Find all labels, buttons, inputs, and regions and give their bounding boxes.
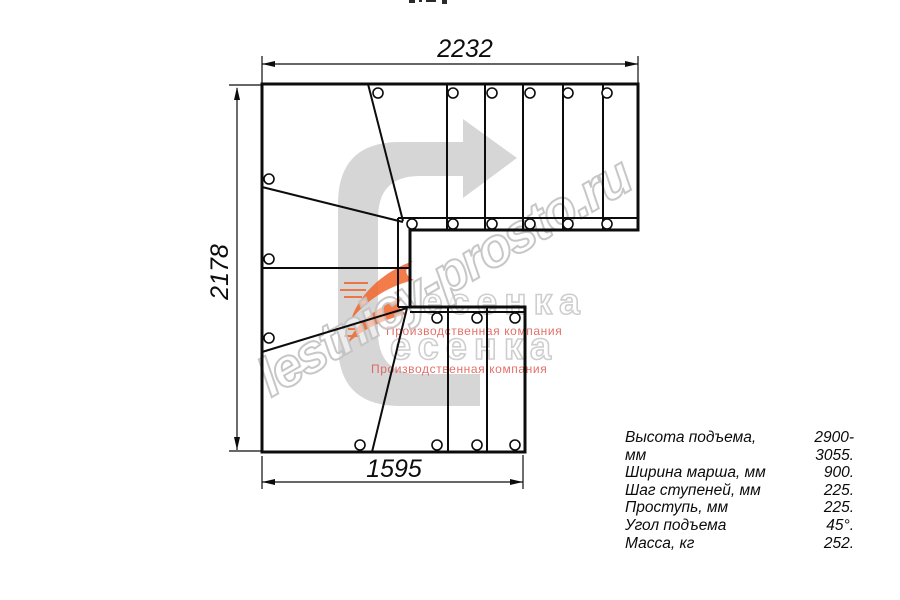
spec-row: Проступь, мм 225. — [625, 499, 854, 517]
entry-flight-tread-lines — [448, 307, 487, 452]
spec-label: Угол подъема — [625, 517, 726, 535]
mounting-hole — [563, 88, 573, 98]
spec-value: 45°. — [826, 517, 854, 535]
spec-label: Проступь, мм — [625, 499, 728, 517]
mounting-hole — [264, 333, 274, 343]
dimension-label-left: 2178 — [206, 244, 234, 301]
spec-value: 225. — [824, 499, 854, 517]
stringer-band-lines — [398, 218, 638, 312]
mounting-hole — [448, 88, 458, 98]
dimension-label-bottom: 1595 — [366, 455, 422, 483]
spec-row: Масса, кг 252. — [625, 535, 854, 553]
mounting-hole — [355, 440, 365, 450]
dimension-label-top: 2232 — [436, 35, 493, 63]
mounting-hole — [373, 88, 383, 98]
spec-row: Ширина марша, мм 900. — [625, 464, 854, 482]
mounting-hole — [563, 219, 573, 229]
mounting-hole — [487, 219, 497, 229]
mounting-hole — [510, 313, 520, 323]
mounting-hole — [602, 219, 612, 229]
spec-label: Шаг ступеней, мм — [625, 482, 761, 500]
mounting-hole — [432, 313, 442, 323]
winder-tread-lines — [262, 84, 410, 452]
mounting-hole — [602, 88, 612, 98]
mounting-hole — [510, 440, 520, 450]
spec-row: Угол подъема 45°. — [625, 517, 854, 535]
mounting-hole — [525, 219, 535, 229]
mounting-hole — [472, 313, 482, 323]
mounting-hole — [264, 254, 274, 264]
spec-value: 2900-3055. — [778, 429, 854, 464]
spec-label: Высота подъема, мм — [625, 429, 778, 464]
spec-row: Высота подъема, мм 2900-3055. — [625, 429, 854, 464]
mounting-hole — [487, 88, 497, 98]
mounting-hole — [448, 219, 458, 229]
spec-label: Масса, кг — [625, 535, 694, 553]
mounting-hole — [525, 88, 535, 98]
spec-value: 900. — [824, 464, 854, 482]
cropped-top-text-fragment — [409, 0, 447, 4]
spec-row: Шаг ступеней, мм 225. — [625, 482, 854, 500]
spec-label: Ширина марша, мм — [625, 464, 766, 482]
mounting-hole — [432, 440, 442, 450]
spec-table: Высота подъема, мм 2900-3055. Ширина мар… — [625, 429, 854, 552]
spec-value: 225. — [824, 482, 854, 500]
spec-value: 252. — [824, 535, 854, 553]
mounting-hole — [407, 219, 417, 229]
top-flight-tread-lines — [447, 84, 603, 230]
staircase-plan-drawing: есенка Производственная компания есенка … — [0, 0, 900, 600]
mounting-hole — [472, 440, 482, 450]
mounting-hole — [264, 174, 274, 184]
